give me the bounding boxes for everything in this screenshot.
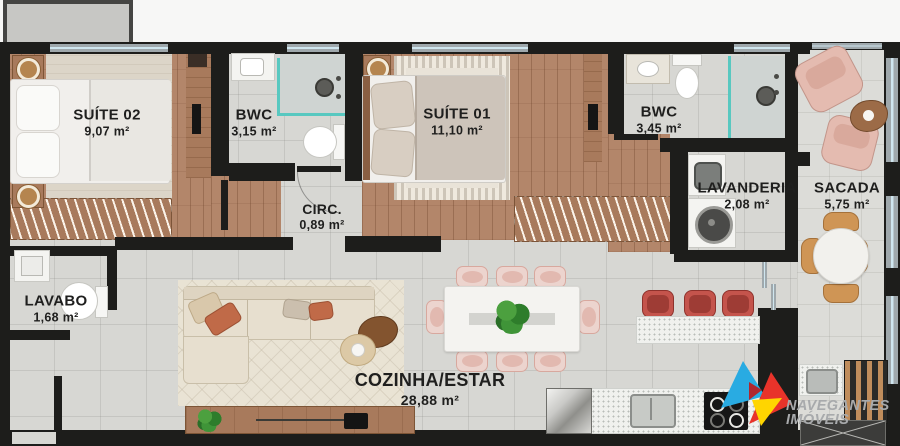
grill-slats [844, 360, 888, 424]
room-label-circ: CIRC. 0,89 m² [299, 201, 344, 233]
wall-kitchen-sacada-top [758, 250, 798, 262]
tv-device [344, 413, 368, 429]
room-label-bwc1: BWC 3,15 m² [231, 107, 276, 140]
sofa-chaise [183, 336, 249, 384]
washer-dot [708, 219, 715, 226]
tv-panel-suite02 [186, 52, 211, 178]
basin [637, 61, 659, 77]
floor-plan: SUÍTE 02 9,07 m² BWC 3,15 m² SUÍTE 01 11… [0, 0, 900, 446]
door-entry [54, 376, 62, 432]
pillow [370, 128, 416, 177]
room-name: BWC [636, 104, 681, 122]
wall-corridor-lavanderia [670, 152, 688, 254]
shower-knobs-bwc1 [336, 76, 341, 81]
shower-glass-bwc2 [728, 56, 731, 138]
tv-suite01 [588, 104, 598, 130]
plant-dining [494, 298, 530, 334]
room-area: 0,89 m² [299, 218, 344, 233]
room-label-suite02: SUÍTE 02 9,07 m² [73, 107, 140, 140]
shower-knobs-bwc2 [774, 74, 779, 79]
room-area: 2,08 m² [697, 198, 796, 213]
shower-head-bwc1 [315, 78, 334, 97]
sofa-pillow-rust-2 [308, 300, 334, 321]
pillow [16, 85, 60, 131]
island-stool [684, 290, 716, 318]
room-name: SUÍTE 01 [423, 106, 490, 124]
brand-name-line2: IMÓVEIS [786, 413, 849, 428]
wall-left [0, 42, 10, 446]
room-name: SACADA [814, 180, 880, 198]
window-sacada-right-2 [886, 196, 898, 268]
wall-lavabo-right [107, 246, 117, 310]
shower-floor-bwc1 [280, 54, 345, 114]
dining-chair [456, 266, 488, 288]
basin [21, 256, 43, 276]
lamp-suite02-top [17, 58, 40, 81]
lavabo-sink [14, 250, 50, 282]
door-suite02 [221, 180, 228, 230]
dining-chair [496, 266, 528, 288]
sliding-door-sacada-2 [771, 284, 776, 310]
wall-suite02-bwc1 [211, 42, 229, 176]
dining-chair [456, 350, 488, 372]
toilet-bwc1 [303, 124, 345, 158]
dresser-suite02 [188, 53, 207, 67]
sacada-sink-counter [799, 364, 843, 396]
pillow [370, 80, 417, 130]
tv-suite02 [192, 104, 201, 134]
shower-glass-bwc1-h [277, 113, 345, 116]
wall-bwc2-left [608, 42, 624, 134]
room-name: CIRC. [299, 201, 344, 218]
window-bwc1 [287, 44, 339, 52]
entry-opening [12, 432, 56, 444]
dining-chair [534, 350, 566, 372]
toilet-bowl [303, 126, 337, 158]
room-area: 11,10 m² [423, 124, 490, 139]
sacada-round-table [813, 228, 869, 284]
room-name: LAVABO [25, 293, 88, 311]
room-label-bwc2: BWC 3,45 m² [636, 104, 681, 137]
dining-chair [578, 300, 600, 334]
shower-head-bwc2 [756, 86, 776, 106]
wall-circ-bottom [345, 236, 441, 252]
room-name: BWC [231, 107, 276, 125]
sofa-cushion-gap [247, 299, 248, 339]
room-area: 1,68 m² [25, 311, 88, 326]
armchair-cushion [803, 54, 849, 92]
sacada-chair [823, 284, 859, 303]
wall-sacada-pier [785, 152, 810, 166]
kitchen-island [636, 316, 760, 344]
room-label-lavanderia: LAVANDERIA 2,08 m² [697, 180, 796, 213]
room-area: 28,88 m² [355, 391, 506, 408]
fridge [546, 388, 592, 434]
sofa-pillow-taupe [282, 298, 312, 321]
room-area: 9,07 m² [73, 125, 140, 140]
room-area: 5,75 m² [814, 198, 880, 213]
window-suite01 [412, 44, 528, 52]
room-area: 3,15 m² [231, 125, 276, 140]
tv-panel-suite01 [584, 54, 602, 162]
cup [351, 343, 365, 357]
island-stool [642, 290, 674, 318]
island-stool [722, 290, 754, 318]
vanity-bwc2 [626, 54, 670, 84]
vanity-bwc1 [231, 53, 275, 81]
window-sacada-top [812, 43, 882, 49]
room-label-sacada: SACADA 5,75 m² [814, 180, 880, 213]
toilet-tank [672, 54, 702, 66]
sliding-door-sacada-1 [762, 262, 767, 288]
room-name: LAVANDERIA [697, 180, 796, 198]
window-suite02 [50, 44, 168, 52]
room-label-lavabo: LAVABO 1,68 m² [25, 293, 88, 326]
wall-bwc2-bottom [660, 138, 798, 152]
dining-chair [534, 266, 566, 288]
lamp-suite02-bottom [17, 185, 40, 208]
basin [240, 58, 264, 76]
pillow [16, 132, 60, 178]
sink-divider [650, 398, 652, 420]
wall-circ-top-a [229, 163, 295, 181]
wardrobe-suite01 [514, 196, 672, 242]
wall-suite02-bottom [115, 237, 293, 250]
shower-glass-bwc1-v [277, 58, 280, 116]
dining-chair [496, 350, 528, 372]
plant-console [196, 408, 222, 432]
room-area: 3,45 m² [636, 122, 681, 137]
window-bwc2 [734, 44, 790, 52]
headboard [363, 76, 370, 180]
toilet-bowl [675, 67, 699, 99]
room-label-cozinha-estar: COZINHA/ESTAR 28,88 m² [355, 370, 506, 408]
toilet-bwc2 [672, 54, 702, 100]
room-name: COZINHA/ESTAR [355, 370, 506, 392]
cup [863, 110, 874, 121]
terrace-ledge [3, 0, 133, 48]
sacada-sink [806, 369, 838, 394]
room-label-suite01: SUÍTE 01 11,10 m² [423, 106, 490, 139]
kitchen-sink [630, 394, 676, 428]
soundbar [256, 419, 346, 421]
room-name: SUÍTE 02 [73, 107, 140, 125]
wall-suite01-left [345, 42, 363, 168]
wall-lavabo-bottom [8, 330, 70, 340]
coffee-table-round [340, 334, 376, 366]
